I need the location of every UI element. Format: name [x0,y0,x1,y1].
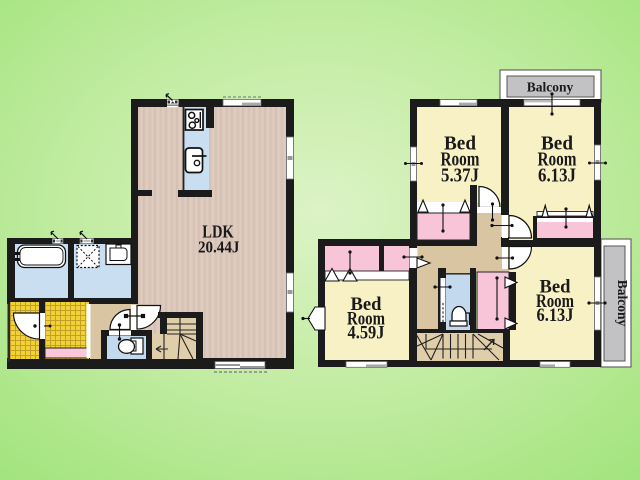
svg-text:4.59J: 4.59J [348,324,385,344]
svg-text:6.13J: 6.13J [538,165,576,187]
svg-text:20.44J: 20.44J [198,238,240,257]
svg-text:5.37J: 5.37J [441,165,479,187]
svg-text:6.13J: 6.13J [537,306,574,326]
svg-text:Balcony: Balcony [527,79,574,94]
svg-text:Balcony: Balcony [615,280,630,327]
